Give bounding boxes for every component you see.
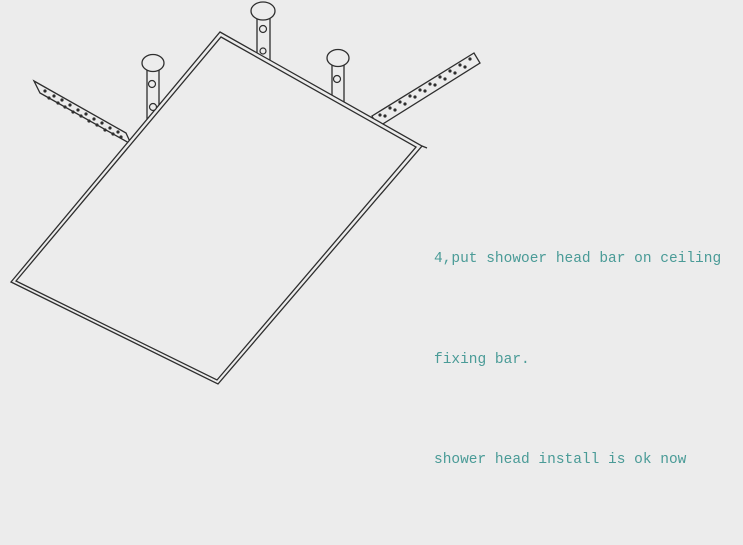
bolt-top-head [251, 2, 275, 20]
page: { "colors": { "background": "#ececec", "… [0, 0, 743, 404]
bolt-right-hole [334, 76, 341, 83]
bolt-left-hole-upper [149, 81, 156, 88]
bolt-left-head [142, 55, 164, 72]
panel-corner-tick [422, 146, 427, 148]
ceiling-fixing-bar-left [34, 81, 131, 144]
shower-head-panel [11, 32, 427, 384]
bolt-top-hole-upper [260, 26, 267, 33]
bolt-top-hole-lower [260, 48, 266, 54]
instruction-line-3: shower head install is ok now [434, 444, 739, 478]
bolt-right-head [327, 50, 349, 67]
panel-outer-edge [11, 32, 422, 384]
instruction-line-2: fixing bar. [434, 344, 739, 378]
ceiling-fixing-bar-right [372, 53, 480, 127]
instruction-text: 4,put showoer head bar on ceiling fixing… [434, 176, 739, 545]
fixing-bar-left-body [34, 81, 131, 144]
bolt-left-hole-lower [150, 104, 157, 111]
instruction-line-1: 4,put showoer head bar on ceiling [434, 243, 739, 277]
installation-step-diagram: 4,put showoer head bar on ceiling fixing… [0, 0, 743, 404]
